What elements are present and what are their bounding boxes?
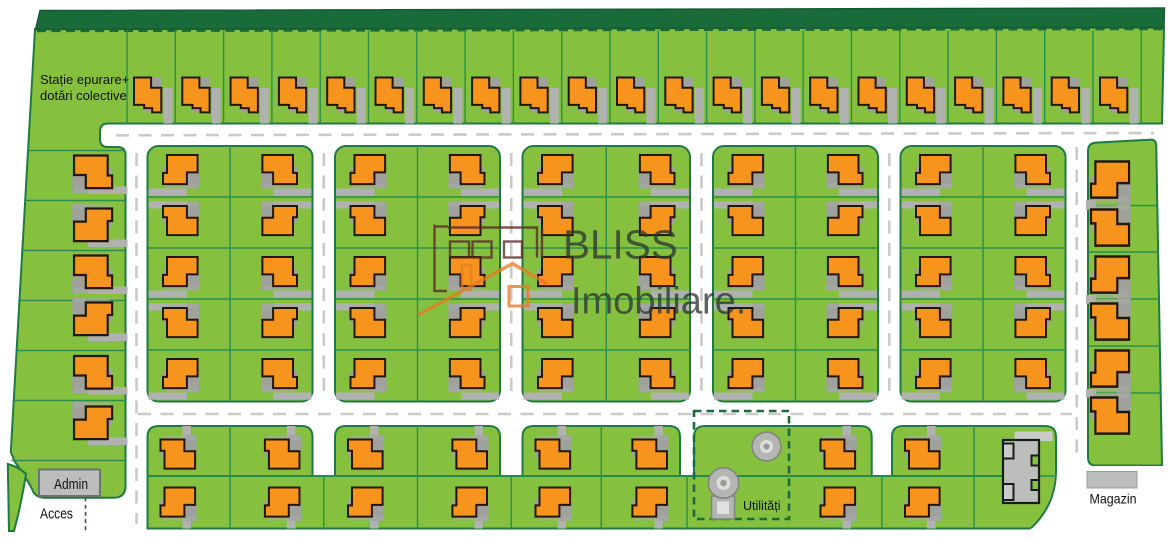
svg-text:Acces: Acces [40,506,73,523]
svg-text:Admin: Admin [54,476,88,493]
svg-text:Utilități: Utilități [743,499,781,513]
svg-text:BLISS: BLISS [563,222,678,268]
svg-text:Imobiliare.: Imobiliare. [571,281,746,323]
svg-text:Stație epurare+dotări colectiv: Stație epurare+dotări colective [40,72,129,103]
svg-text:Magazin: Magazin [1090,491,1137,507]
